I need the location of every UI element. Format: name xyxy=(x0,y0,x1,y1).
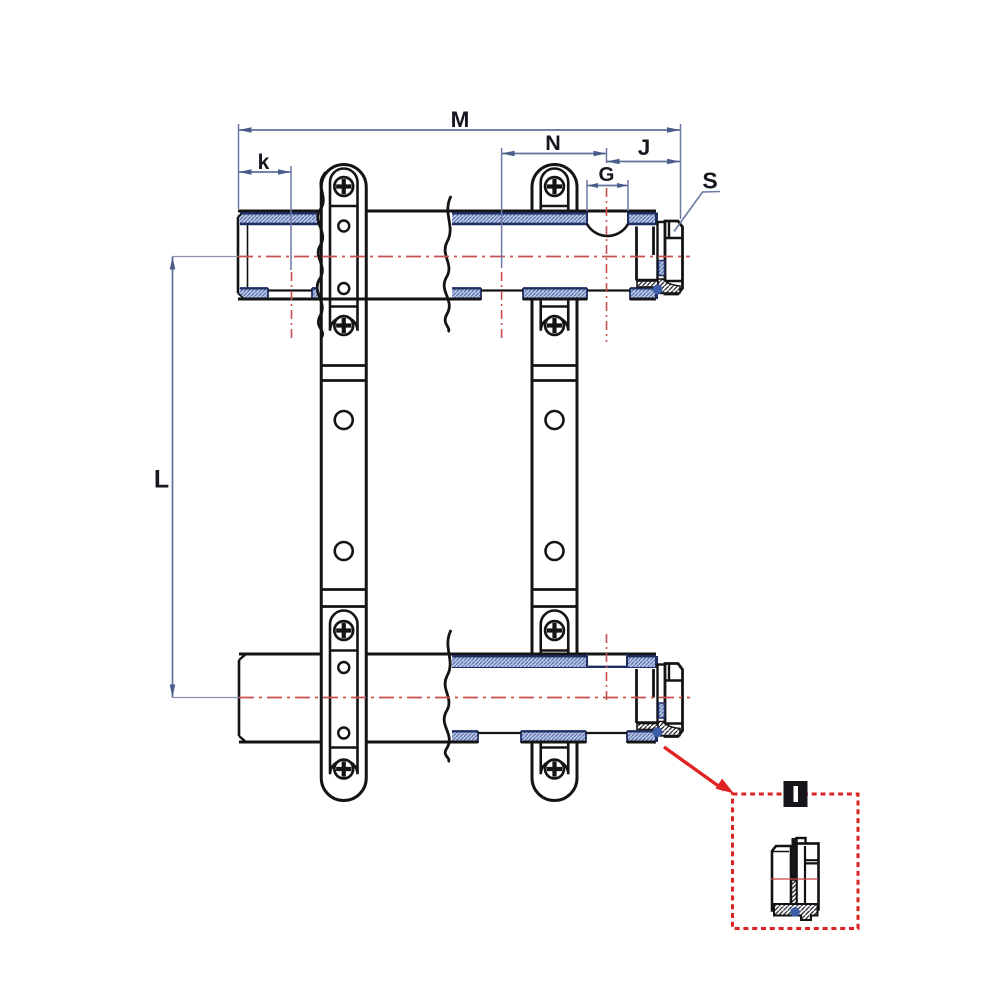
svg-text:N: N xyxy=(545,131,561,155)
svg-text:J: J xyxy=(638,135,651,160)
svg-text:G: G xyxy=(599,163,615,186)
svg-text:L: L xyxy=(154,466,169,494)
svg-text:M: M xyxy=(451,107,470,132)
svg-text:k: k xyxy=(258,151,270,174)
svg-text:S: S xyxy=(702,168,717,194)
